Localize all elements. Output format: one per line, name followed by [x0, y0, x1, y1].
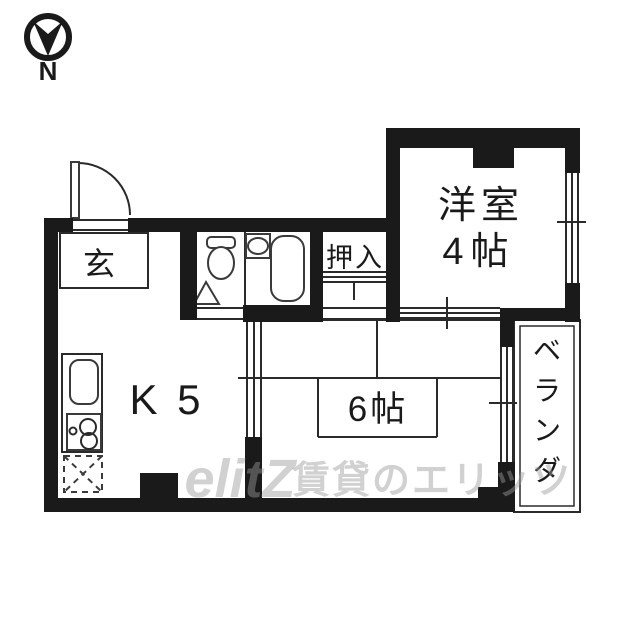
bathtub-icon: [271, 236, 304, 301]
veranda-char: ラ: [533, 375, 561, 406]
wall-left: [44, 218, 58, 512]
western-room-name: 洋室: [438, 185, 524, 227]
pillar-kitchen: [140, 473, 178, 512]
toilet-icon: [207, 237, 235, 279]
wall-western-top-notch: [473, 148, 514, 168]
washbasin-bowl: [248, 238, 268, 254]
entrance-label: 玄: [83, 246, 115, 282]
wall-western-top: [386, 128, 580, 148]
watermark-text: 賃貸のエリッツ: [291, 460, 572, 502]
kitchen-sink-icon: [70, 360, 98, 404]
door-leaf: [71, 162, 79, 218]
tatami-room-label: 6帖: [348, 390, 408, 429]
pillar-veranda-corner: [500, 308, 514, 347]
wall-western-left: [386, 128, 400, 322]
wall-bath-bottom: [243, 305, 323, 322]
washbasin-icon: [246, 234, 270, 258]
wall-top-main: [128, 218, 400, 232]
veranda-char: ン: [533, 415, 561, 446]
kitchen-label: K 5: [129, 376, 204, 423]
stove-burners-icon: [67, 414, 101, 450]
western-room-size: 4帖: [442, 231, 515, 273]
compass-label: N: [39, 56, 58, 86]
closet-label: 押入: [326, 243, 384, 273]
floor-plan-drawing: N: [0, 0, 640, 640]
floor-plan-page: N: [0, 0, 640, 640]
veranda-char: ベ: [533, 335, 561, 366]
wall-western-right-upper: [565, 128, 580, 173]
wall-toilet-left: [180, 232, 197, 320]
toilet-bowl: [208, 247, 234, 279]
watermark-logo: elitZ: [184, 449, 297, 509]
